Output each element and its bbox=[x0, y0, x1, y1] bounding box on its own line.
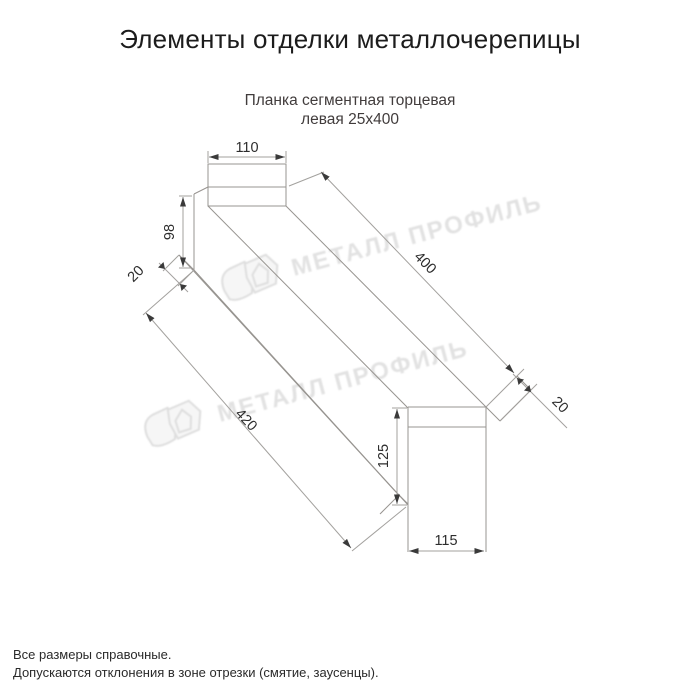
dimension-right-height: 125 bbox=[376, 408, 407, 505]
watermark-lower: МЕТАЛЛ ПРОФИЛЬ bbox=[142, 335, 471, 448]
metall-profil-logo-icon bbox=[142, 399, 204, 447]
dim-label-125: 125 bbox=[376, 444, 392, 468]
catalog-drawing-page: Элементы отделки металлочерепицы Планка … bbox=[0, 0, 700, 700]
left-end-connector bbox=[194, 187, 208, 194]
dim-label-98: 98 bbox=[162, 224, 178, 240]
dim-label-115: 115 bbox=[434, 533, 457, 549]
dim-label-400: 400 bbox=[411, 249, 439, 277]
footnote-line1: Все размеры справочные. bbox=[13, 646, 379, 664]
dim-label-20-left: 20 bbox=[125, 263, 148, 286]
technical-drawing: МЕТАЛЛ ПРОФИЛЬ МЕТАЛЛ ПРОФИЛЬ bbox=[0, 0, 700, 700]
right-end-face bbox=[408, 407, 486, 552]
watermark-text: МЕТАЛЛ ПРОФИЛЬ bbox=[215, 335, 472, 428]
left-end-face bbox=[208, 164, 286, 206]
dimension-right-width: 115 bbox=[409, 533, 484, 551]
right-hem-flap bbox=[486, 376, 531, 421]
watermark-text: МЕТАЛЛ ПРОФИЛЬ bbox=[289, 189, 546, 282]
dimension-top-width: 110 bbox=[208, 140, 286, 163]
dim-label-110: 110 bbox=[235, 140, 258, 156]
footnotes: Все размеры справочные. Допускаются откл… bbox=[13, 646, 379, 681]
footnote-line2: Допускаются отклонения в зоне отрезки (с… bbox=[13, 664, 379, 682]
metall-profil-logo-icon bbox=[219, 253, 281, 301]
